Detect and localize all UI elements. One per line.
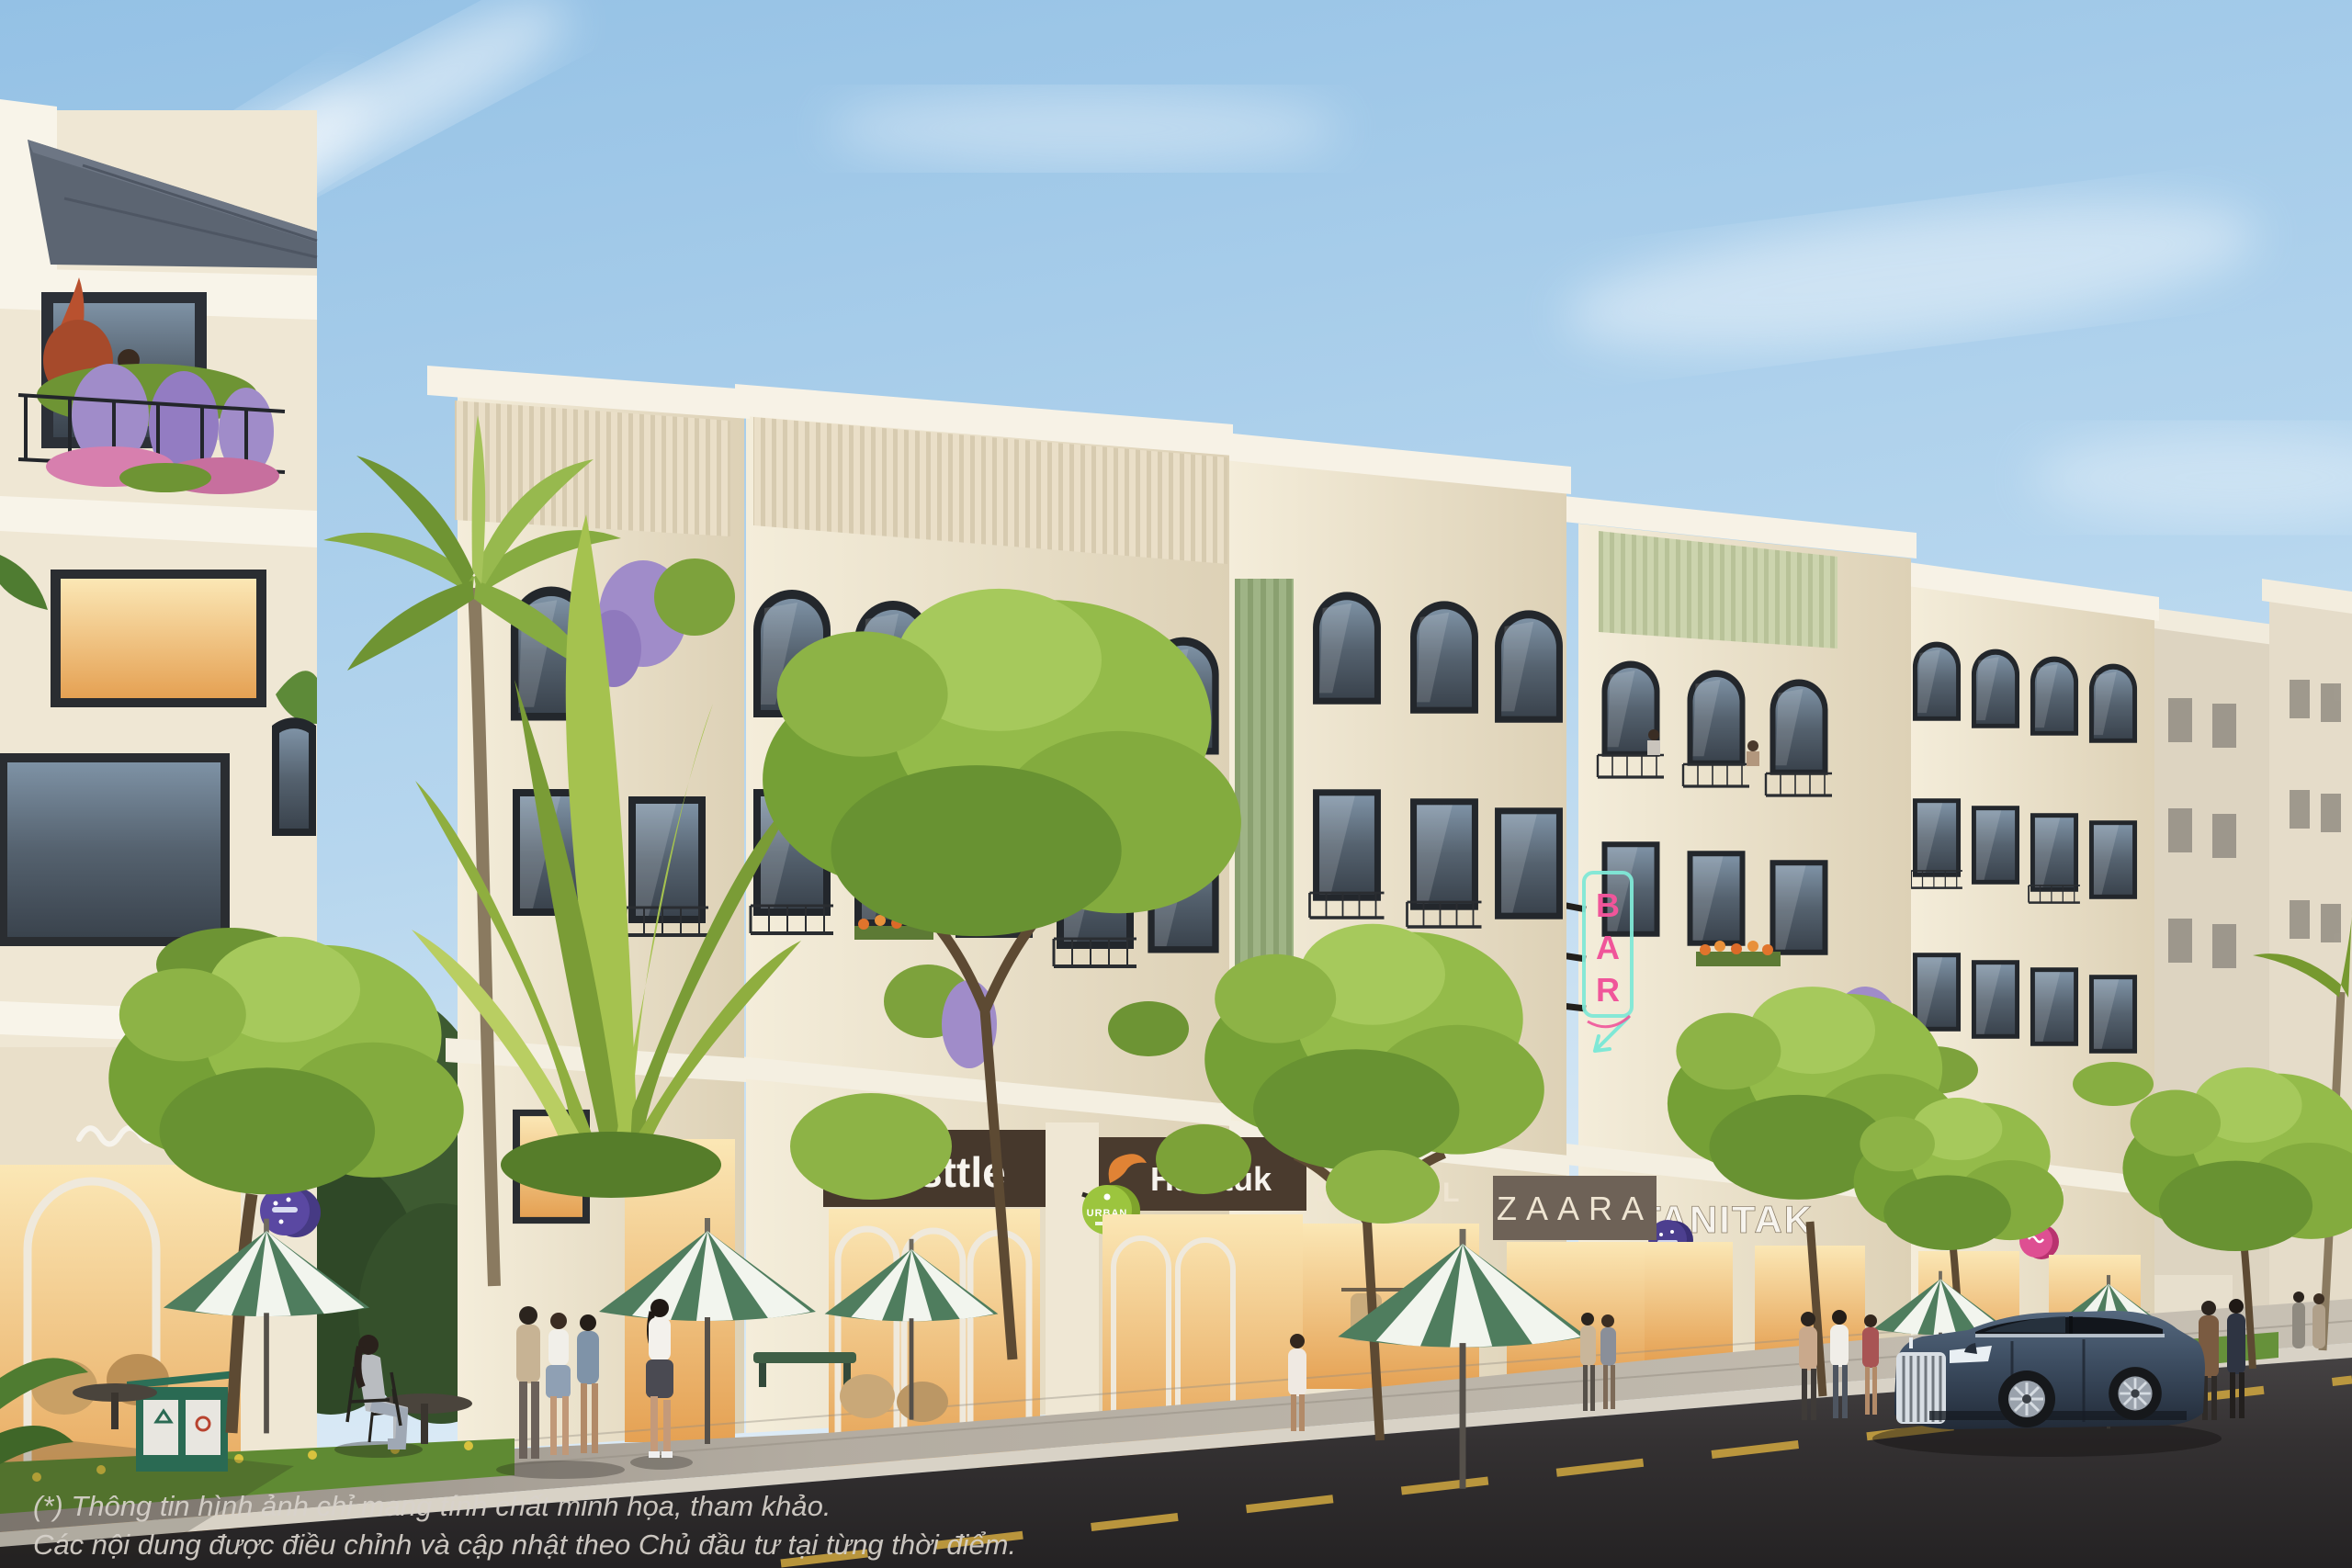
front-wheel	[1998, 1371, 2055, 1427]
disclaimer-line-2: Các nội dung được điều chỉnh và cập nhật…	[33, 1529, 1016, 1561]
disclaimer-line-1: (*) Thông tin hình ảnh chỉ mang tính chấ…	[33, 1490, 831, 1522]
svg-text:A: A	[1596, 929, 1620, 966]
rear-wheel	[2109, 1367, 2162, 1420]
render-canvas: TANITAK B A R CHANEL ZAARA	[0, 0, 2352, 1568]
rattan-chair	[897, 1382, 948, 1422]
svg-text:R: R	[1596, 971, 1620, 1009]
svg-text:B: B	[1596, 886, 1620, 924]
rattan-chair	[840, 1374, 895, 1418]
left-building	[0, 99, 321, 1543]
hood-ornament	[1909, 1337, 1913, 1348]
zaara-sign: ZAARA	[1497, 1190, 1653, 1227]
fluted-frieze	[455, 400, 730, 536]
green-wall-panel	[1235, 579, 1294, 983]
